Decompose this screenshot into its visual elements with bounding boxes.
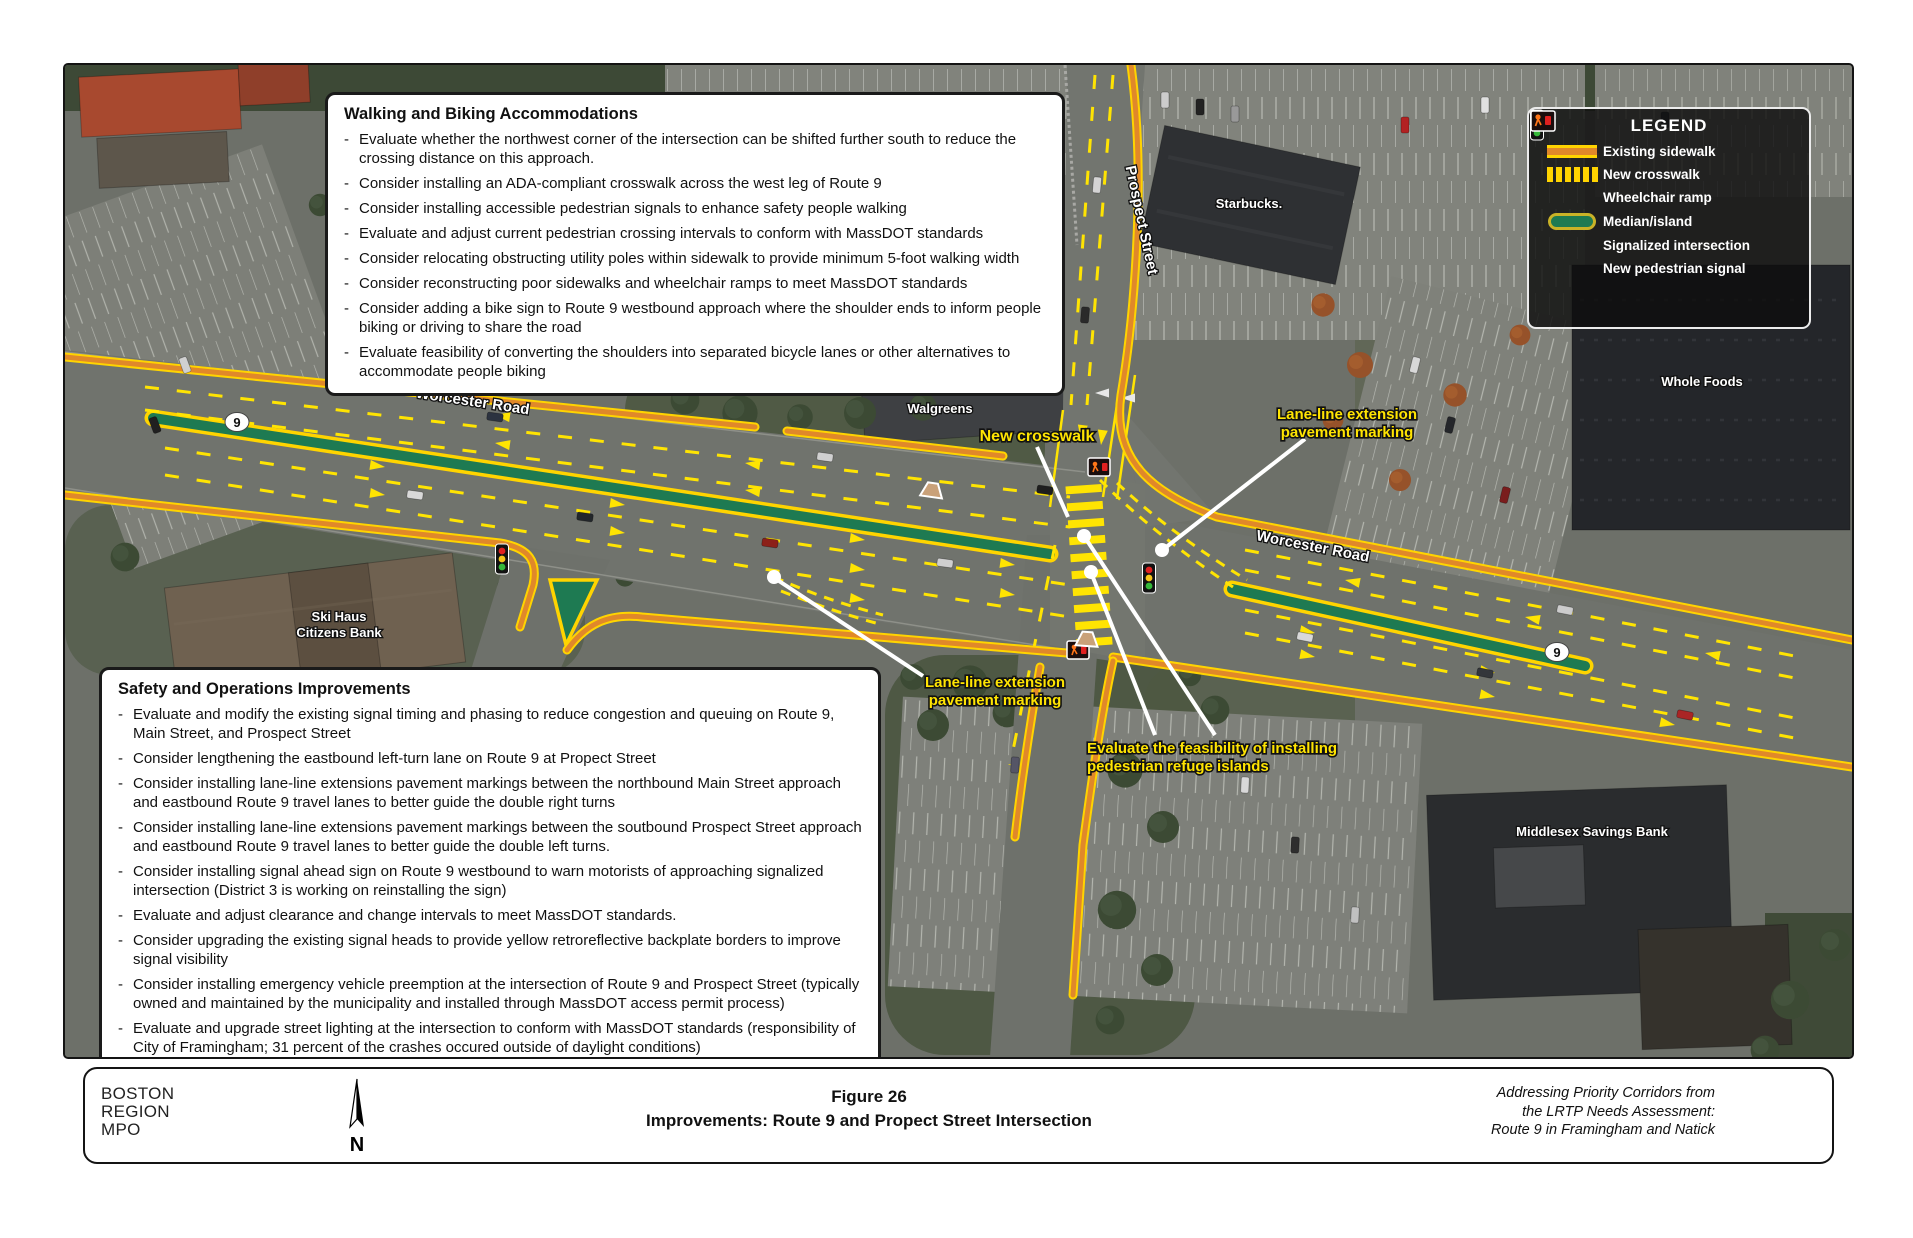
report-credit: Addressing Priority Corridors from the L… [1491,1084,1715,1140]
list-item: Evaluate and modify the existing signal … [116,705,864,743]
figure-title: Figure 26 Improvements: Route 9 and Prop… [589,1087,1149,1131]
footer-bar: BOSTON REGION MPO N Figure 26 Improvemen… [83,1067,1834,1164]
list-item: Evaluate and adjust current pedestrian c… [342,224,1048,243]
list-item: Consider upgrading the existing signal h… [116,931,864,969]
signalized-intersection-icon [1143,563,1156,593]
svg-text:9: 9 [1553,645,1560,660]
legend: LEGEND Existing sidewalk New crosswalk W… [1527,107,1811,329]
safety-operations-note-box: Safety and Operations Improvements Evalu… [99,667,881,1059]
list-item: Consider installing accessible pedestria… [342,199,1048,218]
place-label-starbucks: Starbucks. [1216,196,1282,211]
callout-lane-line-extension-west: Lane-line extension [925,674,1065,691]
walking-biking-note-box: Walking and Biking Accommodations Evalua… [325,92,1065,396]
list-item: Consider reconstructing poor sidewalks a… [342,274,1048,293]
legend-row: Median/island [1541,213,1801,230]
new-crosswalk-icon [1541,167,1603,182]
list-item: Evaluate and upgrade street lighting at … [116,1019,864,1057]
legend-row: New crosswalk [1541,167,1801,182]
callout-new-crosswalk: New crosswalk [980,428,1095,445]
new-pedestrian-signal-icon [1088,458,1110,476]
list-item: Evaluate feasibility of converting the s… [342,343,1048,381]
list-item: Consider installing signal ahead sign on… [116,862,864,900]
list-item: Consider installing an ADA-compliant cro… [342,174,1048,193]
place-label-citizens-bank: Citizens Bank [296,625,382,640]
legend-row: Existing sidewalk [1541,144,1801,159]
legend-title: LEGEND [1529,116,1809,136]
agency-name: BOSTON REGION MPO [101,1085,174,1139]
list-item: Consider installing lane-line extensions… [116,818,864,856]
figure-caption: Improvements: Route 9 and Propect Street… [589,1111,1149,1131]
callout-lane-line-extension-ne: Lane-line extension [1277,406,1417,423]
list-item: Consider lengthening the eastbound left-… [116,749,864,768]
list-item: Evaluate whether the northwest corner of… [342,130,1048,168]
list-item: Consider adding a bike sign to Route 9 w… [342,299,1048,337]
legend-row: Wheelchair ramp [1541,190,1801,205]
north-arrow-icon [340,1077,374,1133]
svg-text:pavement marking: pavement marking [929,692,1062,709]
signalized-intersection-icon [496,544,509,574]
route-9-shield: 9 [1545,643,1569,662]
list-item: Consider relocating obstructing utility … [342,249,1048,268]
legend-row: New pedestrian signal [1541,261,1801,276]
list-item: Consider installing emergency vehicle pr… [116,975,864,1013]
place-label-middlesex-savings-bank: Middlesex Savings Bank [1516,824,1668,839]
legend-row: Signalized intersection [1541,238,1801,253]
existing-sidewalk-icon [1541,145,1603,158]
safety-box-title: Safety and Operations Improvements [118,680,864,699]
place-label-ski-haus: Ski Haus [312,609,367,624]
north-arrow: N [337,1077,377,1157]
svg-text:9: 9 [233,415,240,430]
safety-box-list: Evaluate and modify the existing signal … [116,705,864,1057]
place-label-walgreens: Walgreens [907,401,972,416]
list-item: Evaluate and adjust clearance and change… [116,906,864,925]
list-item: Consider installing lane-line extensions… [116,774,864,812]
place-label-whole-foods: Whole Foods [1661,374,1743,389]
median-island-icon [1541,213,1603,230]
svg-text:pedestrian refuge islands: pedestrian refuge islands [1087,758,1269,775]
figure-number: Figure 26 [589,1087,1149,1107]
aerial-map: 9 9 Worcester Road Worcester Road Prospe… [63,63,1854,1059]
walking-box-title: Walking and Biking Accommodations [344,105,1048,124]
walking-box-list: Evaluate whether the northwest corner of… [342,130,1048,381]
svg-text:pavement marking: pavement marking [1281,424,1414,441]
callout-pedestrian-refuge: Evaluate the feasibility of installing [1087,740,1337,757]
route-9-shield: 9 [225,413,249,432]
